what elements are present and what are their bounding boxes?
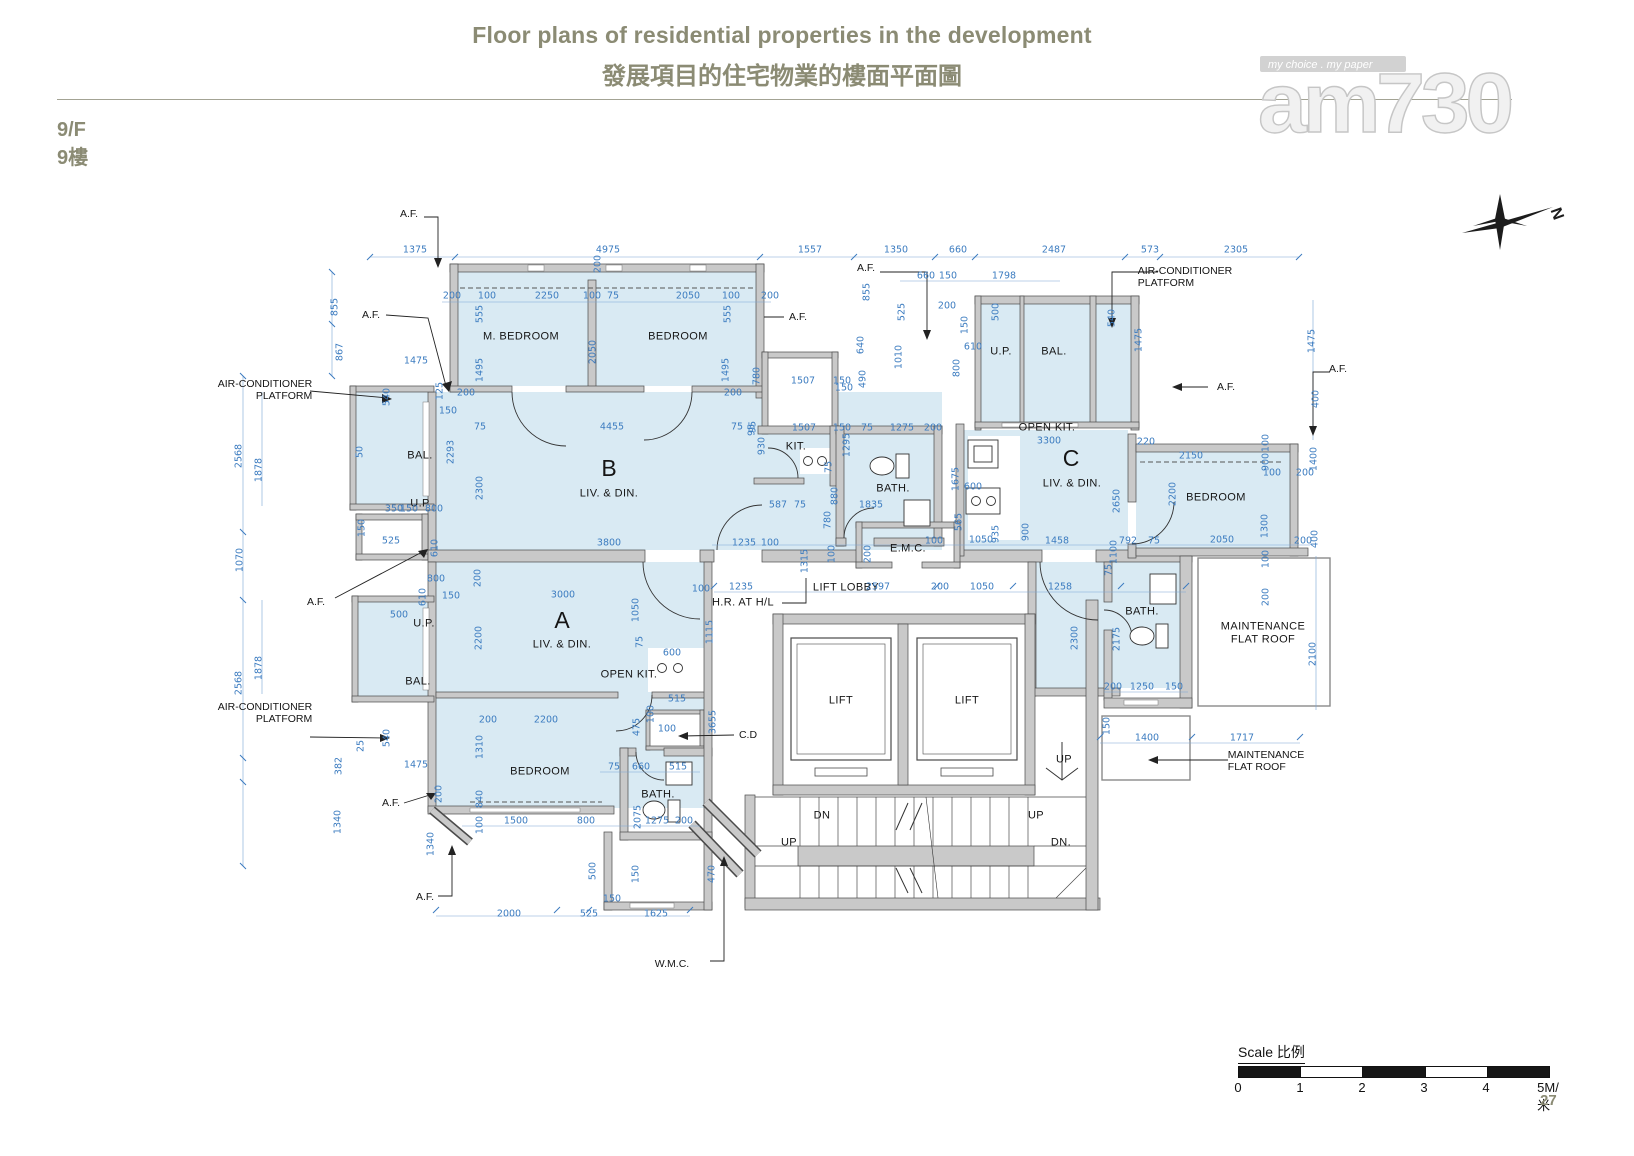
annotation-label: AIR-CONDITIONER PLATFORM	[218, 378, 313, 402]
dimension-label: 2200	[534, 716, 558, 727]
dimension-label: 4455	[600, 423, 624, 434]
dimension-label: 1495	[722, 358, 733, 382]
dimension-label: 840	[476, 790, 487, 808]
dimension-label: 400	[1311, 530, 1322, 548]
dimension-label: 75	[1148, 537, 1160, 548]
dimension-label: 200	[761, 292, 779, 303]
dimension-label: 3300	[1037, 437, 1061, 448]
room-label: BATH.	[876, 483, 910, 496]
dimension-label: 200	[474, 569, 485, 587]
plan-label-layer: M. BEDROOMBEDROOMBLIV. & DIN.BAL.U.PKIT.…	[0, 0, 1634, 1156]
annotation-label: W.M.C.	[655, 958, 689, 970]
dimension-label: 1400	[1135, 734, 1159, 745]
dimension-label: 2487	[1042, 246, 1066, 257]
room-label: OPEN KIT.	[601, 669, 658, 682]
dimension-label: 200	[864, 545, 875, 563]
dimension-label: 1250	[1130, 683, 1154, 694]
dimension-label: 100	[478, 292, 496, 303]
dimension-label: 515	[668, 695, 686, 706]
dimension-label: 1717	[1230, 734, 1254, 745]
dimension-label: 1258	[1048, 583, 1072, 594]
dimension-label: 1798	[992, 272, 1016, 283]
room-label: M. BEDROOM	[483, 331, 559, 344]
dimension-label: 150	[400, 505, 418, 516]
annotation-label: A.F.	[400, 208, 418, 220]
room-label: A	[554, 607, 569, 633]
scale-label: Scale 比例	[1238, 1042, 1305, 1064]
dimension-label: 640	[857, 336, 868, 354]
dimension-label: 555	[476, 305, 487, 323]
scale-tick: 4	[1482, 1080, 1489, 1095]
scale-segment	[1363, 1067, 1424, 1077]
room-label: H.R. AT H/L	[712, 597, 774, 610]
scale-segment	[1300, 1067, 1363, 1077]
dimension-label: 525	[580, 910, 598, 921]
room-label: UP	[1028, 810, 1044, 823]
dimension-label: 1340	[334, 810, 345, 834]
dimension-label: 150	[442, 592, 460, 603]
dimension-label: 500	[390, 611, 408, 622]
dimension-label: 1295	[843, 433, 854, 457]
room-label: BAL.	[407, 450, 432, 463]
dimension-label: 150	[439, 407, 457, 418]
dimension-label: 200	[594, 255, 605, 273]
dimension-label: 100	[761, 539, 779, 550]
dimension-label: 1475	[404, 761, 428, 772]
dimension-label: 100	[476, 816, 487, 834]
annotation-label: AIR-CONDITIONER PLATFORM	[1138, 265, 1233, 289]
dimension-label: 100	[925, 537, 943, 548]
dimension-label: 2597	[866, 583, 890, 594]
dimension-label: 555	[724, 305, 735, 323]
dimension-label: 75	[861, 424, 873, 435]
dimension-label: 1315	[801, 549, 812, 573]
dimension-label: 200	[443, 292, 461, 303]
dimension-label: 2050	[676, 292, 700, 303]
dimension-label: 800	[427, 575, 445, 586]
dimension-label: 2100	[1309, 642, 1320, 666]
room-label: MAINTENANCE FLAT ROOF	[1221, 620, 1305, 645]
dimension-label: 150	[632, 865, 643, 883]
annotation-label: A.F.	[857, 262, 875, 274]
room-label: BATH.	[641, 789, 675, 802]
scale-segment	[1239, 1067, 1300, 1077]
annotation-label: A.F.	[789, 311, 807, 323]
room-label: LIV. & DIN.	[1043, 478, 1101, 491]
dimension-label: 2000	[497, 910, 521, 921]
scale-bar: Scale 比例 012345M/米	[1238, 1042, 1558, 1094]
dimension-label: 100	[692, 585, 710, 596]
dimension-label: 880	[831, 487, 842, 505]
dimension-label: 1500	[504, 817, 528, 828]
dimension-label: 2650	[1113, 489, 1124, 513]
dimension-label: 2300	[1071, 626, 1082, 650]
dimension-label: 500	[589, 862, 600, 880]
dimension-label: 1115	[706, 620, 717, 644]
dimension-label: 610	[419, 588, 430, 606]
dimension-label: 2075	[634, 805, 645, 829]
dimension-label: 100	[1263, 469, 1281, 480]
dimension-label: 800	[953, 359, 964, 377]
dimension-label: 1300	[1261, 514, 1272, 538]
room-label: B	[601, 455, 616, 481]
room-label: LIV. & DIN.	[533, 639, 591, 652]
room-label: KIT.	[786, 441, 807, 454]
dimension-label: 565	[955, 513, 966, 531]
dimension-label: 540	[383, 729, 394, 747]
room-label: BEDROOM	[648, 331, 708, 344]
dimension-label: 1070	[236, 548, 247, 572]
dimension-label: 855	[331, 298, 342, 316]
dimension-label: 100	[722, 292, 740, 303]
annotation-label: AIR-CONDITIONER PLATFORM	[218, 701, 313, 725]
room-label: DN.	[1051, 837, 1071, 850]
dimension-label: 1878	[255, 656, 266, 680]
dimension-label: 1475	[1135, 328, 1146, 352]
annotation-label: A.F.	[1217, 381, 1235, 393]
dimension-label: 610	[431, 539, 442, 557]
room-label: BAL.	[405, 676, 430, 689]
dimension-label: 930	[758, 437, 769, 455]
dimension-label: 2300	[476, 476, 487, 500]
dimension-label: 150	[939, 272, 957, 283]
dimension-label: 1010	[895, 345, 906, 369]
dimension-label: 780	[753, 367, 764, 385]
dimension-label: 1507	[792, 424, 816, 435]
dimension-label: 150	[358, 519, 369, 537]
dimension-label: 490	[859, 370, 870, 388]
dimension-label: 50	[356, 446, 367, 458]
scale-tick: 1	[1296, 1080, 1303, 1095]
dimension-label: 2305	[1224, 246, 1248, 257]
dimension-label: 1100	[1110, 540, 1121, 564]
dimension-label: 1625	[644, 910, 668, 921]
dimension-label: 3800	[597, 539, 621, 550]
room-label: BEDROOM	[1186, 492, 1246, 505]
dimension-label: 100	[1262, 434, 1273, 452]
dimension-label: 2050	[1210, 536, 1234, 547]
dimension-label: 220	[1137, 438, 1155, 449]
dimension-label: 1235	[729, 583, 753, 594]
dimension-label: 2050	[589, 340, 600, 364]
dimension-label: 1050	[970, 583, 994, 594]
dimension-label: 200	[675, 817, 693, 828]
dimension-label: 780	[824, 511, 835, 529]
dimension-label: 2293	[447, 440, 458, 464]
dimension-label: 800	[425, 505, 443, 516]
dimension-label: 75	[825, 461, 836, 473]
dimension-label: 150	[603, 895, 621, 906]
dimension-label: 75	[794, 501, 806, 512]
dimension-label: 2568	[235, 671, 246, 695]
dimension-label: 100	[583, 292, 601, 303]
dimension-label: 1475	[404, 357, 428, 368]
dimension-label: 200	[435, 785, 446, 803]
dimension-label: 470	[708, 865, 719, 883]
room-label: UP	[781, 837, 797, 850]
room-label: OPEN KIT.	[1019, 422, 1076, 435]
scale-ticks: 012345M/米	[1238, 1080, 1568, 1094]
dimension-label: 900	[1022, 523, 1033, 541]
dimension-label: 200	[479, 716, 497, 727]
annotation-label: A.F.	[1329, 363, 1347, 375]
dimension-label: 75	[1105, 564, 1116, 576]
annotation-label: C.D	[739, 729, 757, 741]
dimension-label: 400	[1312, 390, 1323, 408]
dimension-label: 500	[992, 303, 1003, 321]
scale-tick: 2	[1358, 1080, 1365, 1095]
dimension-label: 75	[731, 423, 743, 434]
room-label: BATH.	[1125, 606, 1159, 619]
dimension-label: 200	[724, 389, 742, 400]
annotation-label: MAINTENANCE FLAT ROOF	[1228, 749, 1304, 773]
dimension-label: 200	[938, 302, 956, 313]
dimension-label: 75	[608, 763, 620, 774]
dimension-label: 150	[1103, 717, 1114, 735]
dimension-label: 1475	[1308, 329, 1319, 353]
room-label: U.P.	[990, 346, 1012, 359]
dimension-label: 1375	[403, 246, 427, 257]
dimension-label: 95	[749, 421, 760, 433]
scale-tick: 0	[1234, 1080, 1241, 1095]
dimension-label: 573	[1141, 246, 1159, 257]
dimension-label: 800	[577, 817, 595, 828]
dimension-label: 1675	[952, 467, 963, 491]
scale-tick: 3	[1420, 1080, 1427, 1095]
dimension-label: 382	[335, 757, 346, 775]
dimension-label: 200	[457, 389, 475, 400]
dimension-label: 660	[949, 246, 967, 257]
dimension-label: 2250	[535, 292, 559, 303]
dimension-label: 3655	[709, 710, 720, 734]
dimension-label: 1340	[427, 832, 438, 856]
dimension-label: 1350	[884, 246, 908, 257]
dimension-label: 150	[833, 377, 851, 388]
dimension-label: 150	[1165, 683, 1183, 694]
dimension-label: 660	[632, 763, 650, 774]
annotation-label: A.F.	[307, 596, 325, 608]
dimension-label: 75	[474, 423, 486, 434]
room-label: BEDROOM	[510, 766, 570, 779]
dimension-label: 540	[383, 388, 394, 406]
room-label: C	[1063, 445, 1080, 471]
dimension-label: 1507	[791, 377, 815, 388]
dimension-label: 100	[658, 725, 676, 736]
dimension-label: 200	[1104, 683, 1122, 694]
dimension-label: 1495	[476, 358, 487, 382]
dimension-label: 2150	[1179, 452, 1203, 463]
dimension-label: 25	[357, 740, 368, 752]
dimension-label: 1557	[798, 246, 822, 257]
annotation-label: A.F.	[382, 797, 400, 809]
dimension-label: 1050	[632, 598, 643, 622]
room-label: LIFT	[829, 695, 853, 708]
dimension-label: 100	[647, 705, 658, 723]
annotation-label: A.F.	[362, 309, 380, 321]
dimension-label: 600	[663, 649, 681, 660]
dimension-label: 792	[1119, 537, 1137, 548]
dimension-label: 525	[382, 537, 400, 548]
dimension-label: 2568	[235, 444, 246, 468]
dimension-label: 475	[633, 718, 644, 736]
scale-segment	[1488, 1067, 1549, 1077]
dimension-label: 75	[607, 292, 619, 303]
dimension-label: 200	[1262, 588, 1273, 606]
dimension-label: 855	[863, 283, 874, 301]
page-number: 27	[1540, 1092, 1557, 1109]
dimension-label: 600	[964, 483, 982, 494]
room-label: DN	[814, 810, 831, 823]
room-label: BAL.	[1041, 346, 1066, 359]
dimension-label: 1050	[969, 536, 993, 547]
dimension-label: 100	[1262, 550, 1273, 568]
room-label: U.P.	[413, 618, 435, 631]
dimension-label: 1878	[255, 458, 266, 482]
dimension-label: 525	[898, 303, 909, 321]
dimension-label: 200	[924, 424, 942, 435]
dimension-label: 125	[436, 382, 447, 400]
scale-bar-segments	[1238, 1066, 1550, 1078]
dimension-label: 2200	[1169, 482, 1180, 506]
dimension-label: 2200	[475, 626, 486, 650]
dimension-label: 1235	[732, 539, 756, 550]
dimension-label: 1275	[645, 817, 669, 828]
dimension-label: 1310	[476, 735, 487, 759]
room-label: UP	[1056, 754, 1072, 767]
dimension-label: 150	[961, 316, 972, 334]
dimension-label: 540	[1108, 309, 1119, 327]
dimension-label: 1835	[859, 501, 883, 512]
dimension-label: 1275	[890, 424, 914, 435]
dimension-label: 610	[964, 343, 982, 354]
room-label: E.M.C.	[890, 543, 926, 556]
dimension-label: 2175	[1113, 627, 1124, 651]
scale-segment	[1425, 1067, 1488, 1077]
dimension-label: 3000	[551, 591, 575, 602]
dimension-label: 867	[336, 343, 347, 361]
page: Floor plans of residential properties in…	[0, 0, 1634, 1156]
annotation-label: A.F.	[416, 891, 434, 903]
dimension-label: 1458	[1045, 537, 1069, 548]
dimension-label: 200	[1296, 469, 1314, 480]
room-label: LIFT	[955, 695, 979, 708]
dimension-label: 587	[769, 501, 787, 512]
dimension-label: 100	[828, 545, 839, 563]
dimension-label: 660	[917, 272, 935, 283]
dimension-label: 75	[636, 636, 647, 648]
dimension-label: 200	[931, 583, 949, 594]
dimension-label: 935	[992, 525, 1003, 543]
dimension-label: 515	[669, 763, 687, 774]
room-label: LIV. & DIN.	[580, 488, 638, 501]
